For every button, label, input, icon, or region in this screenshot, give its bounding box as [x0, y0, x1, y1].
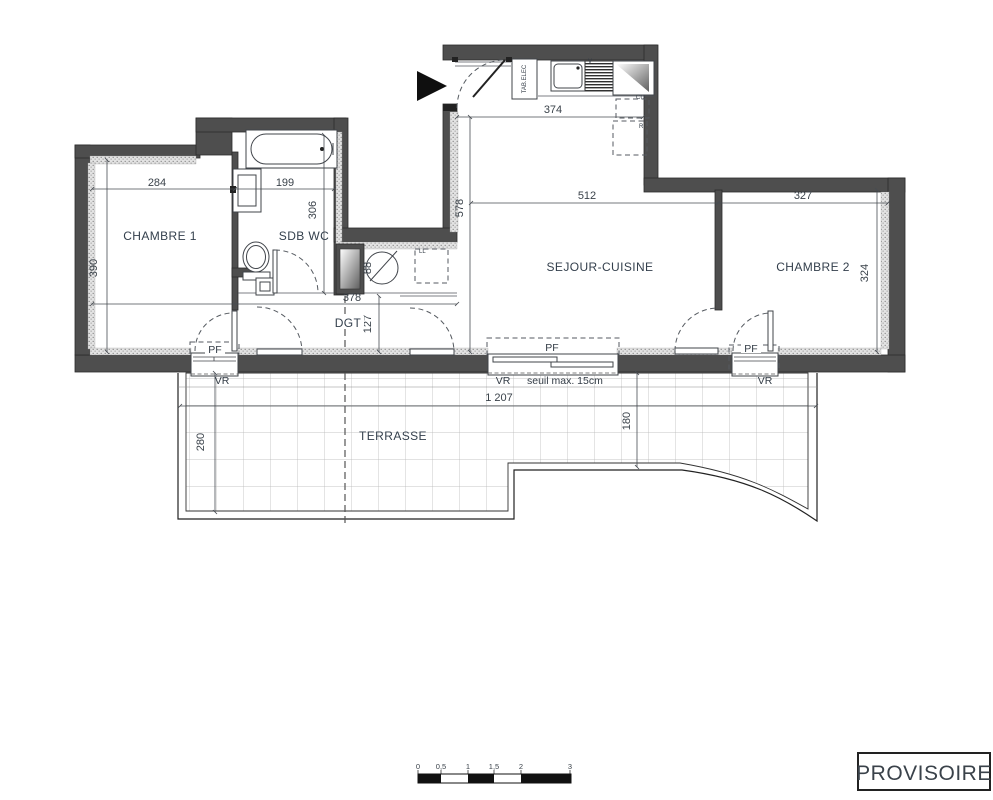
bathtub — [246, 130, 337, 168]
vr-label-chambre1: VR — [215, 375, 230, 387]
partition-chambre2 — [715, 190, 722, 310]
dim-512: 512 — [578, 190, 596, 202]
dim-1207: 1 207 — [485, 392, 513, 404]
provisional-stamp: PROVISOIRE — [856, 753, 992, 790]
dim-324: 324 — [859, 264, 871, 282]
floor-plan-drawing: TAB.ELEC V CU R LL — [0, 0, 993, 800]
dim-180: 180 — [621, 412, 633, 430]
door-chambre1 — [257, 307, 302, 355]
washbasin — [230, 169, 261, 212]
cooktop: V — [585, 59, 613, 91]
entrance-arrow-icon — [417, 71, 447, 101]
provisional-stamp-text: PROVISOIRE — [856, 762, 992, 785]
terrace-area — [178, 296, 817, 524]
room-label-chambre1: CHAMBRE 1 — [123, 229, 197, 243]
tab-elec-label: TAB.ELEC — [522, 64, 528, 93]
vr-label-sejour: VR — [496, 375, 511, 387]
kitchen-corner-unit: CU — [613, 61, 654, 101]
hood-label: V — [588, 59, 592, 65]
dim-390: 390 — [88, 259, 100, 277]
scale-bar: 0 0,5 1 1,5 2 3 — [416, 762, 572, 783]
washing-machine-slot: LL — [415, 249, 448, 283]
dim-306: 306 — [307, 201, 319, 219]
dim-378: 378 — [343, 292, 361, 304]
vr-label-chambre2: VR — [758, 375, 773, 387]
room-label-sdb: SDB WC — [279, 229, 329, 243]
dim-327: 327 — [794, 190, 812, 202]
room-label-terrasse: TERRASSE — [359, 429, 427, 443]
wall-right — [888, 178, 905, 372]
wall-chambre2-top — [644, 178, 905, 192]
cuisine-label: CU — [636, 95, 645, 101]
washer-label: LL — [419, 249, 426, 255]
room-label-dgt: DGT — [335, 316, 362, 330]
scale-0: 0 — [416, 762, 420, 771]
seuil-note: seuil max. 15cm — [527, 375, 603, 387]
wall-niche-top — [334, 228, 457, 242]
toilet — [243, 242, 274, 295]
fridge-label: R — [639, 124, 644, 130]
kitchen-sink — [551, 61, 585, 91]
pf-label-chambre1: PF — [208, 344, 221, 356]
wall-sejour-left-cap — [443, 104, 457, 111]
wall-kitchen-top — [443, 45, 657, 60]
dim-199: 199 — [276, 177, 294, 189]
dim-374: 374 — [544, 104, 562, 116]
scale-2: 2 — [519, 762, 523, 771]
dim-88: 88 — [362, 262, 374, 274]
scale-3: 3 — [568, 762, 572, 771]
scale-15: 1,5 — [489, 762, 499, 771]
room-label-chambre2: CHAMBRE 2 — [776, 260, 850, 274]
door-sdb — [273, 250, 318, 293]
dim-578: 578 — [454, 199, 466, 217]
floor-plan-page: TAB.ELEC V CU R LL — [0, 0, 993, 800]
dim-280: 280 — [195, 433, 207, 451]
pf-label-sejour: PF — [545, 342, 558, 354]
electrical-panel: TAB.ELEC — [512, 59, 537, 99]
niche-closet — [336, 244, 364, 294]
door-chambre2 — [675, 308, 718, 354]
door-entrance — [452, 57, 512, 108]
room-label-sejour: SEJOUR-CUISINE — [547, 260, 654, 274]
pf-label-chambre2: PF — [744, 343, 757, 355]
walls — [75, 45, 905, 372]
dim-284: 284 — [148, 177, 166, 189]
fridge-dashed-outline: R — [613, 99, 649, 155]
wall-left — [75, 145, 90, 355]
scale-1: 1 — [466, 762, 470, 771]
scale-05: 0,5 — [436, 762, 446, 771]
